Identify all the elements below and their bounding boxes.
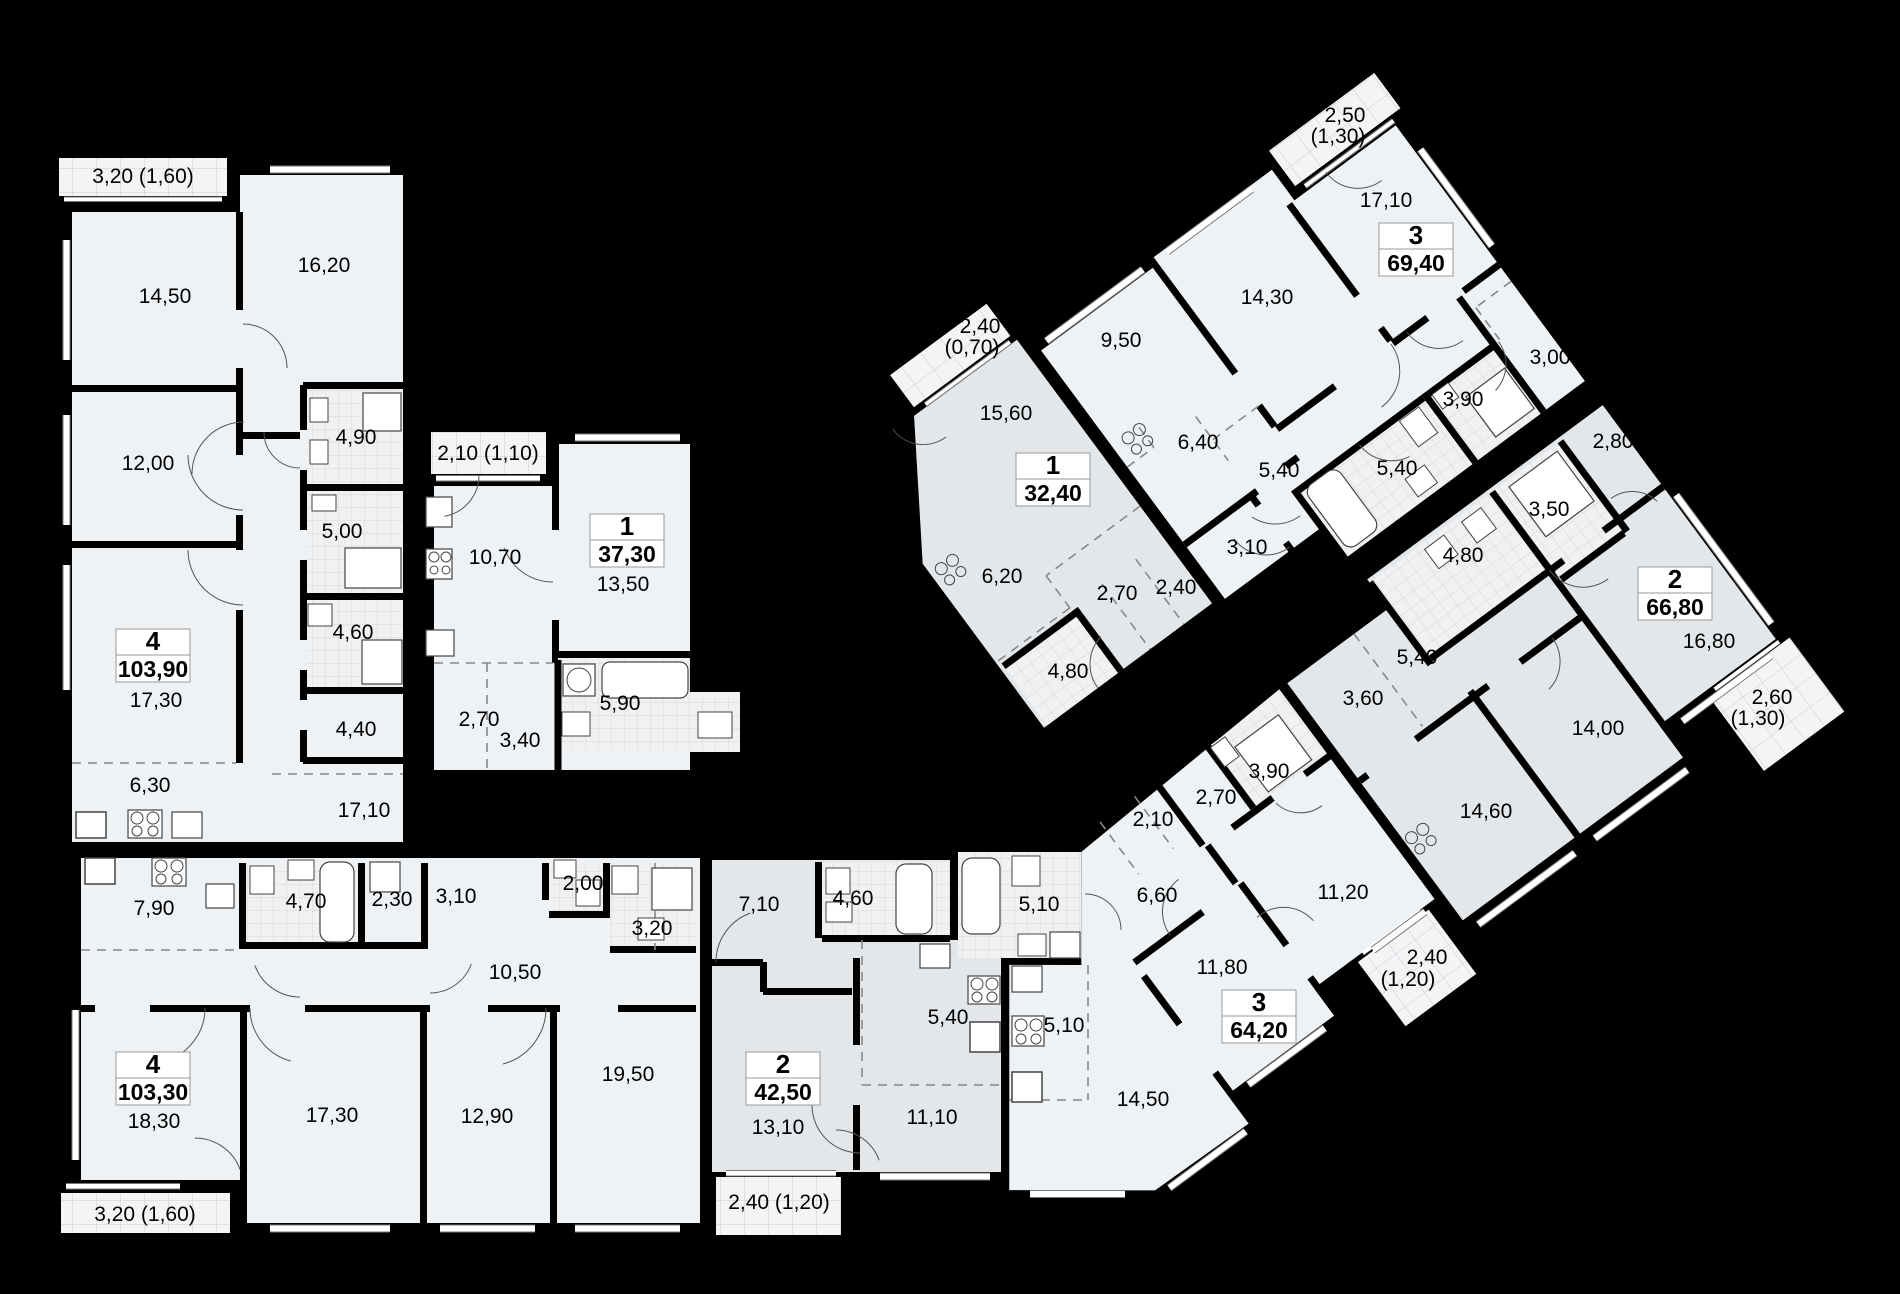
svg-text:(0,70): (0,70)	[945, 336, 1000, 359]
svg-text:4,70: 4,70	[286, 890, 327, 913]
svg-text:69,40: 69,40	[1387, 250, 1445, 276]
svg-text:66,80: 66,80	[1646, 594, 1704, 620]
svg-text:3: 3	[1409, 220, 1423, 250]
svg-text:5,40: 5,40	[1397, 646, 1438, 669]
svg-text:6,20: 6,20	[982, 565, 1023, 588]
svg-text:(1,20): (1,20)	[1381, 968, 1436, 991]
svg-text:3,10: 3,10	[1227, 536, 1268, 559]
svg-text:42,50: 42,50	[754, 1079, 812, 1105]
svg-text:2,40: 2,40	[1156, 576, 1197, 599]
svg-text:4,60: 4,60	[333, 621, 374, 644]
svg-text:3,40: 3,40	[500, 729, 541, 752]
svg-text:2,80: 2,80	[1593, 430, 1634, 453]
svg-text:12,90: 12,90	[461, 1105, 514, 1128]
svg-text:3,90: 3,90	[1249, 760, 1290, 783]
svg-text:4,40: 4,40	[336, 718, 377, 741]
svg-text:3,60: 3,60	[1343, 687, 1384, 710]
svg-text:1: 1	[1046, 450, 1060, 480]
svg-text:2: 2	[776, 1049, 790, 1079]
svg-text:5,40: 5,40	[1377, 457, 1418, 480]
svg-text:4: 4	[146, 1049, 161, 1079]
svg-text:2,60: 2,60	[1752, 686, 1793, 709]
svg-text:2,50: 2,50	[1325, 104, 1366, 127]
svg-text:3,10: 3,10	[436, 885, 477, 908]
svg-text:14,50: 14,50	[1117, 1088, 1170, 1111]
svg-text:103,90: 103,90	[118, 656, 188, 682]
svg-text:4,90: 4,90	[336, 426, 377, 449]
svg-text:6,60: 6,60	[1137, 884, 1178, 907]
svg-text:2,70: 2,70	[1196, 786, 1237, 809]
svg-text:2,00: 2,00	[563, 872, 604, 895]
svg-text:15,60: 15,60	[980, 402, 1033, 425]
svg-text:2,30: 2,30	[372, 888, 413, 911]
svg-text:3: 3	[1252, 987, 1266, 1017]
svg-text:64,20: 64,20	[1230, 1017, 1288, 1043]
svg-text:11,80: 11,80	[1197, 956, 1248, 979]
svg-text:16,80: 16,80	[1683, 630, 1736, 653]
svg-text:3,20 (1,60): 3,20 (1,60)	[92, 165, 194, 188]
svg-text:3,20: 3,20	[632, 917, 673, 940]
svg-text:3,00: 3,00	[1530, 346, 1571, 369]
svg-text:6,30: 6,30	[130, 774, 171, 797]
svg-text:11,20: 11,20	[1318, 881, 1369, 904]
svg-text:5,10: 5,10	[1044, 1014, 1085, 1037]
svg-text:2,40: 2,40	[960, 315, 1001, 338]
svg-text:7,10: 7,10	[739, 893, 780, 916]
svg-text:10,70: 10,70	[469, 546, 522, 569]
svg-text:17,10: 17,10	[1360, 189, 1413, 212]
svg-text:2: 2	[1668, 564, 1682, 594]
svg-text:5,10: 5,10	[1019, 893, 1060, 916]
svg-text:2,40: 2,40	[1407, 946, 1448, 969]
svg-text:2,70: 2,70	[459, 708, 500, 731]
svg-text:4,80: 4,80	[1048, 660, 1089, 683]
svg-text:9,50: 9,50	[1101, 329, 1142, 352]
svg-text:14,50: 14,50	[139, 285, 192, 308]
svg-text:5,00: 5,00	[322, 520, 363, 543]
svg-text:1: 1	[620, 511, 634, 541]
svg-text:(1,30): (1,30)	[1731, 707, 1786, 730]
svg-text:6,40: 6,40	[1178, 431, 1219, 454]
svg-text:2,10 (1,10): 2,10 (1,10)	[437, 442, 539, 465]
svg-text:17,10: 17,10	[338, 799, 391, 822]
svg-text:17,30: 17,30	[130, 689, 183, 712]
svg-text:12,00: 12,00	[122, 452, 175, 475]
svg-text:4: 4	[146, 626, 161, 656]
svg-text:13,50: 13,50	[597, 573, 650, 596]
svg-text:14,60: 14,60	[1460, 800, 1513, 823]
svg-text:4,60: 4,60	[833, 887, 874, 910]
svg-text:32,40: 32,40	[1024, 480, 1082, 506]
svg-text:13,10: 13,10	[752, 1116, 805, 1139]
svg-text:14,00: 14,00	[1572, 717, 1625, 740]
svg-text:3,50: 3,50	[1529, 498, 1570, 521]
svg-text:10,50: 10,50	[489, 961, 542, 984]
svg-text:5,40: 5,40	[1259, 459, 1300, 482]
svg-text:2,40 (1,20): 2,40 (1,20)	[728, 1191, 830, 1214]
svg-text:16,20: 16,20	[298, 254, 351, 277]
svg-text:17,30: 17,30	[306, 1104, 359, 1127]
svg-text:3,20 (1,60): 3,20 (1,60)	[94, 1203, 196, 1226]
svg-text:19,50: 19,50	[602, 1063, 655, 1086]
svg-text:7,90: 7,90	[134, 897, 175, 920]
svg-text:4,80: 4,80	[1443, 544, 1484, 567]
svg-text:(1,30): (1,30)	[1311, 125, 1366, 148]
svg-text:14,30: 14,30	[1241, 286, 1294, 309]
svg-text:5,40: 5,40	[928, 1006, 969, 1029]
svg-text:2,10: 2,10	[1133, 808, 1174, 831]
svg-text:5,90: 5,90	[600, 692, 641, 715]
svg-text:37,30: 37,30	[598, 541, 656, 567]
svg-text:3,90: 3,90	[1443, 388, 1484, 411]
svg-text:11,10: 11,10	[907, 1106, 958, 1129]
svg-text:2,70: 2,70	[1097, 582, 1138, 605]
svg-text:103,30: 103,30	[118, 1079, 188, 1105]
svg-text:18,30: 18,30	[128, 1110, 181, 1133]
